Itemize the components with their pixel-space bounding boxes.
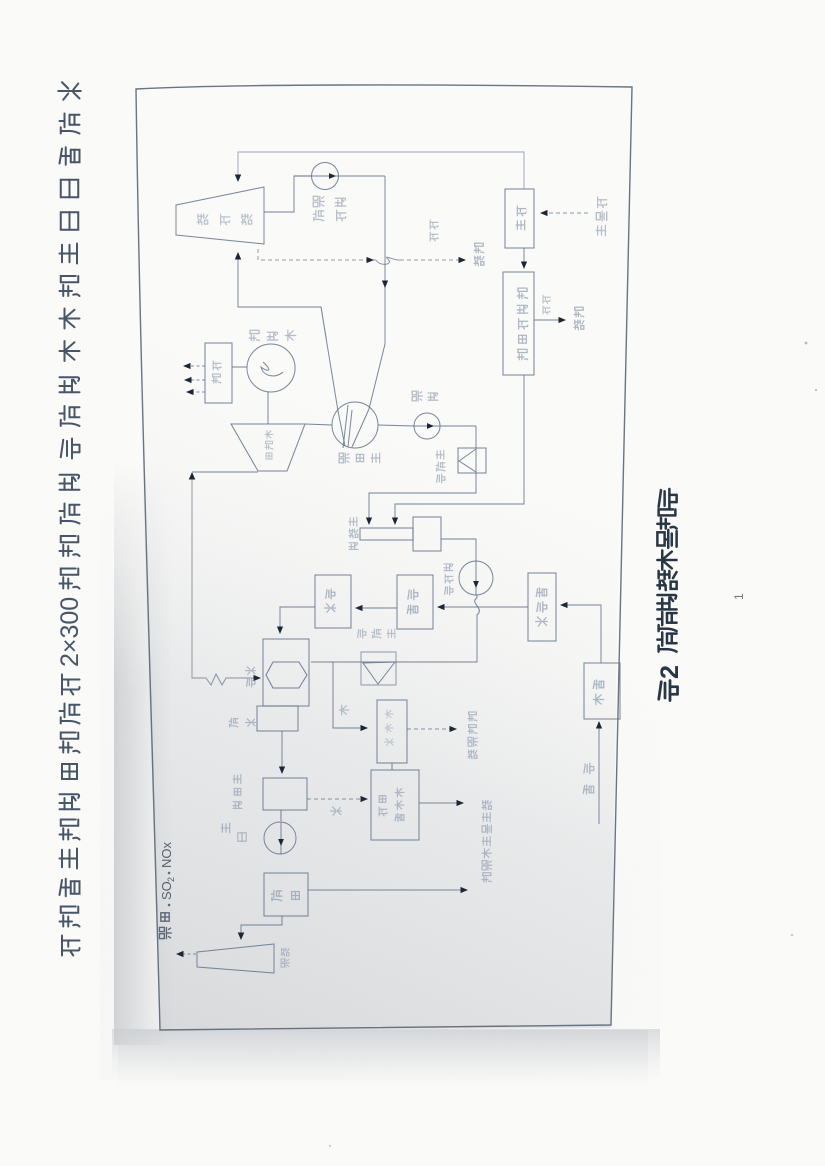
- svg-text:2: 2: [166, 877, 176, 882]
- svg-text:1: 1: [732, 593, 746, 600]
- svg-text:2×300: 2×300: [56, 597, 84, 667]
- svg-text:SO: SO: [159, 881, 174, 900]
- svg-text:2: 2: [656, 665, 684, 679]
- svg-text:NOx: NOx: [159, 842, 174, 869]
